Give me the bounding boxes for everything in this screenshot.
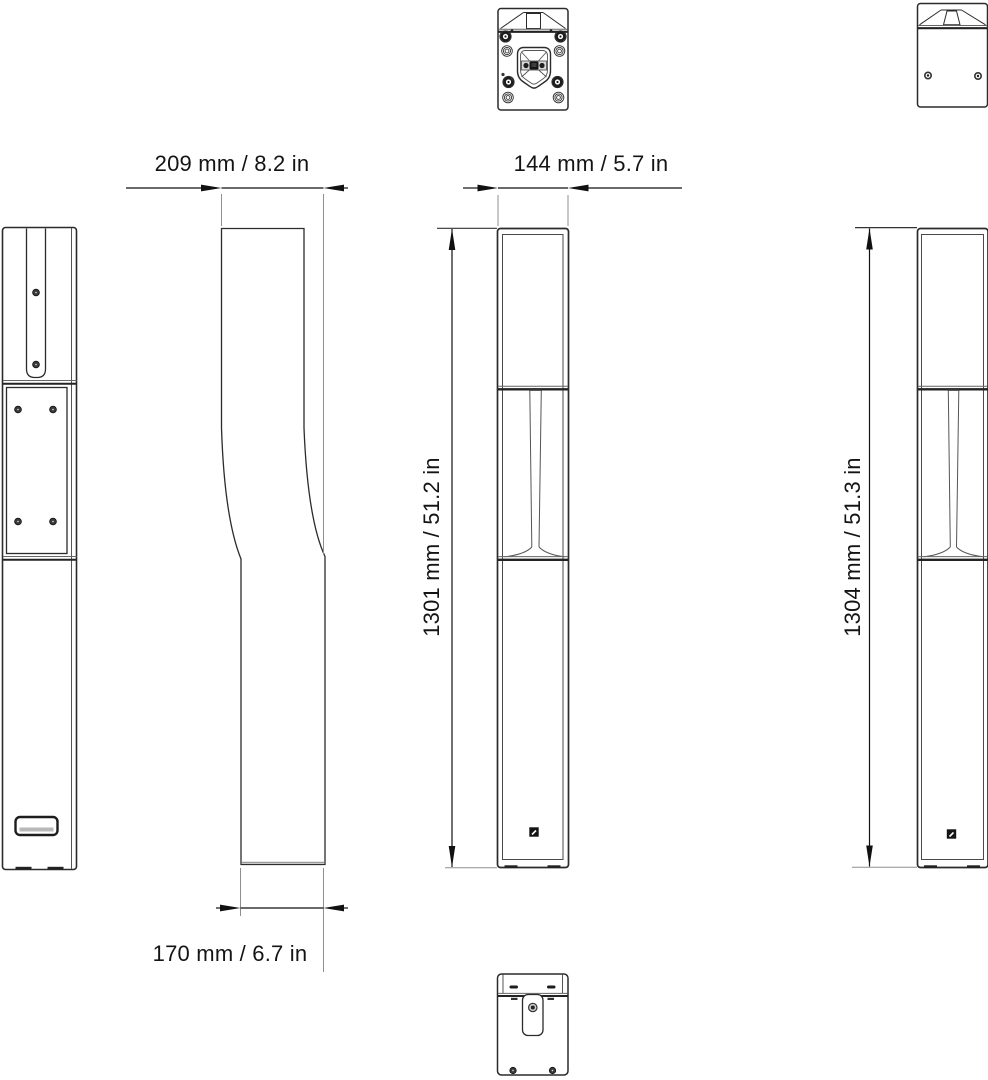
arrowhead [568, 185, 589, 192]
arrowhead [866, 228, 873, 249]
corner-bolt [500, 31, 511, 42]
dim-label-front-height: 1301 mm / 51.2 in [419, 437, 445, 657]
foot [505, 865, 518, 868]
foot [967, 865, 980, 868]
brand-logo-badge [529, 827, 538, 836]
arrowhead [449, 846, 456, 867]
dim-label-bottom-depth: 170 mm / 6.7 in [130, 941, 330, 967]
bracket-side-pin [539, 63, 544, 68]
dim-front-height [437, 228, 497, 868]
arrowhead [449, 229, 456, 250]
band-dot [550, 29, 553, 32]
handle-slot-shade [20, 828, 54, 832]
brand-logo-badge [947, 829, 956, 838]
front-view [498, 229, 569, 868]
arrowhead [201, 185, 222, 192]
screw [510, 1067, 516, 1073]
arrowhead [478, 185, 499, 192]
arrowhead [866, 846, 873, 867]
screw [15, 406, 22, 413]
screw [33, 289, 40, 296]
top-view-rear [918, 4, 988, 108]
screw [50, 406, 57, 413]
top-view [498, 9, 568, 111]
arrowhead [220, 905, 241, 912]
rear-view [3, 228, 77, 870]
foot [548, 865, 561, 868]
corner-bolt [552, 76, 563, 87]
screw [50, 518, 57, 525]
front-view-variant [918, 229, 988, 868]
rear-view-outline [3, 228, 77, 870]
corner-bolt [555, 31, 566, 42]
mounting-bracket [518, 48, 551, 89]
screw [15, 518, 22, 525]
dim-label-front-width: 144 mm / 5.7 in [491, 151, 691, 177]
vent-slot [510, 986, 519, 989]
front-view-outline [498, 229, 569, 868]
screw [33, 361, 40, 368]
screw [549, 1067, 555, 1073]
waveguide-slot-top [529, 388, 542, 391]
bottom-view [498, 974, 569, 1075]
foot [16, 867, 32, 870]
band-dot [511, 29, 514, 32]
front-view-variant-outline [918, 229, 988, 868]
dim-label-rear-height: 1304 mm / 51.3 in [840, 437, 866, 657]
dim-front-width [463, 185, 682, 226]
dimensional-drawing-canvas: 209 mm / 8.2 in 144 mm / 5.7 in 1301 mm … [0, 0, 988, 1080]
arrowhead [324, 185, 345, 192]
arrowhead [324, 905, 345, 912]
small-pin [501, 73, 504, 76]
pole-mount-plate [523, 995, 544, 1036]
handle-slot [16, 817, 58, 835]
edge-mark [548, 998, 555, 1000]
foot [48, 867, 64, 870]
edge-mark [511, 998, 518, 1000]
side-view [222, 229, 326, 865]
foot [924, 865, 937, 868]
bracket-side-pin [523, 63, 528, 68]
pole-mount-socket [529, 1003, 537, 1011]
bracket-connector-face [532, 63, 537, 67]
small-pin [510, 77, 513, 80]
side-view-outline [222, 229, 326, 865]
waveguide-slot-top [948, 388, 960, 391]
vent-slot [547, 986, 556, 989]
dim-label-top-depth: 209 mm / 8.2 in [132, 151, 332, 177]
